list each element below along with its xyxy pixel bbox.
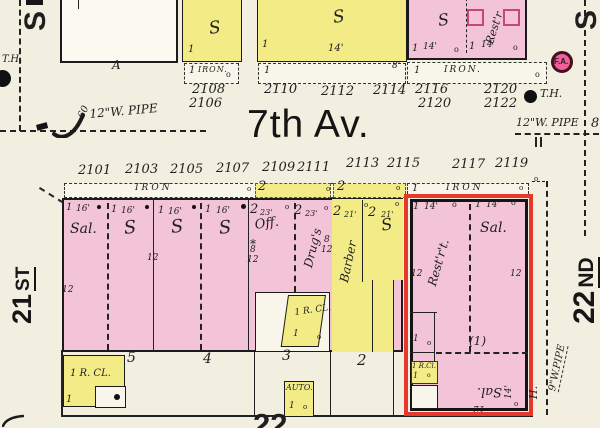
storey-count: 1 xyxy=(188,45,194,55)
lot-number-5: 5 xyxy=(127,351,136,365)
house-number-2107: 2107 xyxy=(216,162,249,175)
dim-12: 12 xyxy=(321,246,332,255)
storey-count: 1 xyxy=(412,44,418,54)
house-number-2120b: 2120 xyxy=(484,83,517,96)
dim-8: 8 xyxy=(250,246,256,255)
rear-closet-notch xyxy=(95,386,126,408)
street-label-21st-number: 21 xyxy=(9,294,36,324)
fire-alarm-label: F.A. xyxy=(554,58,568,66)
store-divider xyxy=(372,280,373,352)
skylight-left xyxy=(467,9,484,26)
label-dwelling-a: A xyxy=(112,59,121,71)
street-letter-top-right: S xyxy=(572,10,600,30)
sheet-number-8: 8 xyxy=(591,117,599,130)
label-store-s: S xyxy=(123,219,137,238)
post-mark: o xyxy=(395,201,399,208)
building-dwelling-a xyxy=(60,0,178,63)
fire-wall-dot xyxy=(114,394,120,400)
house-number-2108: 2108 xyxy=(192,83,225,96)
fire-wall-dot xyxy=(241,204,246,209)
house-number-2105: 2105 xyxy=(170,163,203,176)
post-mark: o xyxy=(534,176,538,183)
house-number-2115: 2115 xyxy=(387,157,420,170)
fire-wall-dot xyxy=(97,205,101,209)
dim-12: 12 xyxy=(247,256,258,265)
post-mark: o xyxy=(396,185,400,192)
corner-dash xyxy=(39,187,64,204)
iron-canopy-yellow-1 xyxy=(255,183,331,198)
street-label-22nd-suffix: ND xyxy=(576,257,600,287)
house-number-2116: 2116 xyxy=(415,83,448,96)
telephone-marker-dot xyxy=(0,70,11,87)
dim-21ft: 21' xyxy=(344,211,356,219)
skylight-right xyxy=(503,9,520,26)
lot-divider xyxy=(254,352,255,415)
storey-count: 1 xyxy=(412,184,418,194)
house-number-2103: 2103 xyxy=(125,163,158,176)
store-divider-dashed xyxy=(107,203,109,350)
label-rear-closet: 1 R. CL. xyxy=(70,369,111,379)
post-mark: o xyxy=(317,334,321,341)
store-divider xyxy=(362,200,363,282)
storey-count: 2 xyxy=(294,204,302,217)
post-mark: o xyxy=(226,71,231,79)
telephone-marker-label: T.H. xyxy=(540,88,562,99)
house-number-2109: 2109 xyxy=(262,161,295,174)
building-barber-lower xyxy=(332,280,393,352)
house-number-2113: 2113 xyxy=(346,157,379,170)
house-number-2111: 2111 xyxy=(297,161,330,174)
label-iron-porch: IRON. xyxy=(444,66,482,75)
storey-count: 1 xyxy=(205,205,211,215)
water-pipe-label-right: 12"W. PIPE xyxy=(516,117,579,128)
storey-count: 1 xyxy=(469,42,475,52)
pipe-tick xyxy=(540,137,542,147)
post-mark: o xyxy=(324,205,328,212)
label-saloon: Sal. xyxy=(70,222,97,236)
dim-14ft: 14' xyxy=(481,41,495,50)
label-iron-canopy: IRON xyxy=(135,184,173,193)
storey-count: 1 xyxy=(111,205,117,215)
corner-squiggle xyxy=(2,414,24,427)
street-boundary-dashed xyxy=(546,181,548,415)
post-mark: o xyxy=(513,44,518,52)
highlight-box xyxy=(404,194,533,416)
label-auto: AUTO. xyxy=(286,384,313,392)
fire-wall-dot xyxy=(192,205,196,209)
telephone-marker-dot xyxy=(524,90,537,103)
house-number-2119: 2119 xyxy=(495,157,528,170)
label-store-s: S xyxy=(218,219,232,238)
house-number-2112: 2112 xyxy=(321,85,354,98)
canopy-storey-2: 2 xyxy=(337,180,345,193)
house-number-2110: 2110 xyxy=(264,83,297,96)
dim-14ft: 14' xyxy=(328,44,343,54)
lot-number-2: 2 xyxy=(357,353,367,368)
post-mark: o xyxy=(535,71,540,79)
water-pipe-line-left xyxy=(0,130,206,132)
lot-divider xyxy=(330,352,331,415)
water-pipe-label-left: 12"W. PIPE xyxy=(89,102,158,120)
label-iron-porch: IRON. xyxy=(198,66,228,74)
lot-number-4: 4 xyxy=(203,352,212,366)
block-number-cropped: 22 xyxy=(253,409,287,428)
store-divider xyxy=(248,200,249,351)
party-wall-dashed xyxy=(466,0,467,53)
street-boundary-dashed xyxy=(584,0,586,236)
dim-16ft: 16' xyxy=(216,207,230,216)
storey-count: 1 xyxy=(262,40,268,50)
lot-number-3: 3 xyxy=(282,349,291,363)
dim-16ft: 16' xyxy=(76,205,90,214)
water-pipe-label-22nd: 9"W.PIPE xyxy=(548,344,569,393)
canopy-storey-2: 2 xyxy=(258,180,266,193)
party-wall-line xyxy=(78,0,79,9)
storey-count: 2 xyxy=(368,206,376,219)
house-number-2120: 2120 xyxy=(418,97,451,110)
storey-count: 1 xyxy=(66,203,72,213)
street-label-21st: 21ST xyxy=(9,267,36,324)
storey-count: 1 xyxy=(189,66,195,76)
street-boundary-dashed xyxy=(19,0,21,131)
storey-count: 2 xyxy=(333,205,341,218)
label-store-s: S xyxy=(208,19,222,37)
street-label-22nd-number: 22 xyxy=(570,291,600,324)
sanborn-map-canvas: 7th Av. AS11IRON.o21082106S14'1121102112… xyxy=(0,0,600,428)
iron-porch-2110 xyxy=(258,63,406,84)
store-divider-dashed xyxy=(200,203,202,350)
post-mark: o xyxy=(519,185,523,192)
storey-count: 1 xyxy=(66,395,72,405)
dim-12: 12 xyxy=(147,254,158,263)
post-mark: o xyxy=(454,46,459,54)
label-hydrant-h: H. xyxy=(528,386,539,399)
house-number-2117: 2117 xyxy=(452,158,485,171)
avenue-label-7th-av: 7th Av. xyxy=(247,103,370,147)
label-store-s: S xyxy=(332,8,346,26)
street-label-22nd: 22ND xyxy=(570,257,600,324)
storey-count: 1 xyxy=(414,66,420,76)
label-iron-canopy: IRON xyxy=(446,184,484,193)
post-mark: o xyxy=(326,186,330,193)
dim-23ft: 23' xyxy=(305,210,317,218)
house-number-2106: 2106 xyxy=(189,97,222,110)
post-mark: o xyxy=(285,204,289,211)
storey-count: 1 xyxy=(158,206,164,216)
water-pipe-line-right xyxy=(515,133,599,135)
building-edge-line xyxy=(393,280,394,415)
storey-count: 1 xyxy=(293,330,299,339)
fire-wall-dot xyxy=(145,205,149,209)
street-letter-top-left: S xyxy=(21,11,51,31)
store-divider xyxy=(153,200,154,351)
post-mark: o xyxy=(303,404,307,411)
post-mark: o xyxy=(247,186,251,193)
house-number-2122: 2122 xyxy=(484,97,517,110)
house-number-2101: 2101 xyxy=(78,164,111,177)
storey-count: 1 xyxy=(264,66,270,76)
dim-8ft: 8' xyxy=(392,62,400,71)
storey-count: 2 xyxy=(250,203,258,216)
dim-12: 12 xyxy=(62,286,73,295)
label-office: Off. xyxy=(254,216,280,232)
dim-16ft: 16' xyxy=(121,207,135,216)
label-store-s: S xyxy=(437,11,450,28)
label-store-s: S xyxy=(170,218,184,237)
pipe-tick xyxy=(535,137,537,147)
dim-14ft: 14' xyxy=(423,43,437,52)
storey-count: 1 xyxy=(289,402,295,411)
dim-8: 8 xyxy=(324,236,330,245)
house-number-2114: 2114 xyxy=(373,84,406,97)
street-letter-fragment xyxy=(26,0,43,5)
street-label-21st-suffix: ST xyxy=(14,267,36,291)
